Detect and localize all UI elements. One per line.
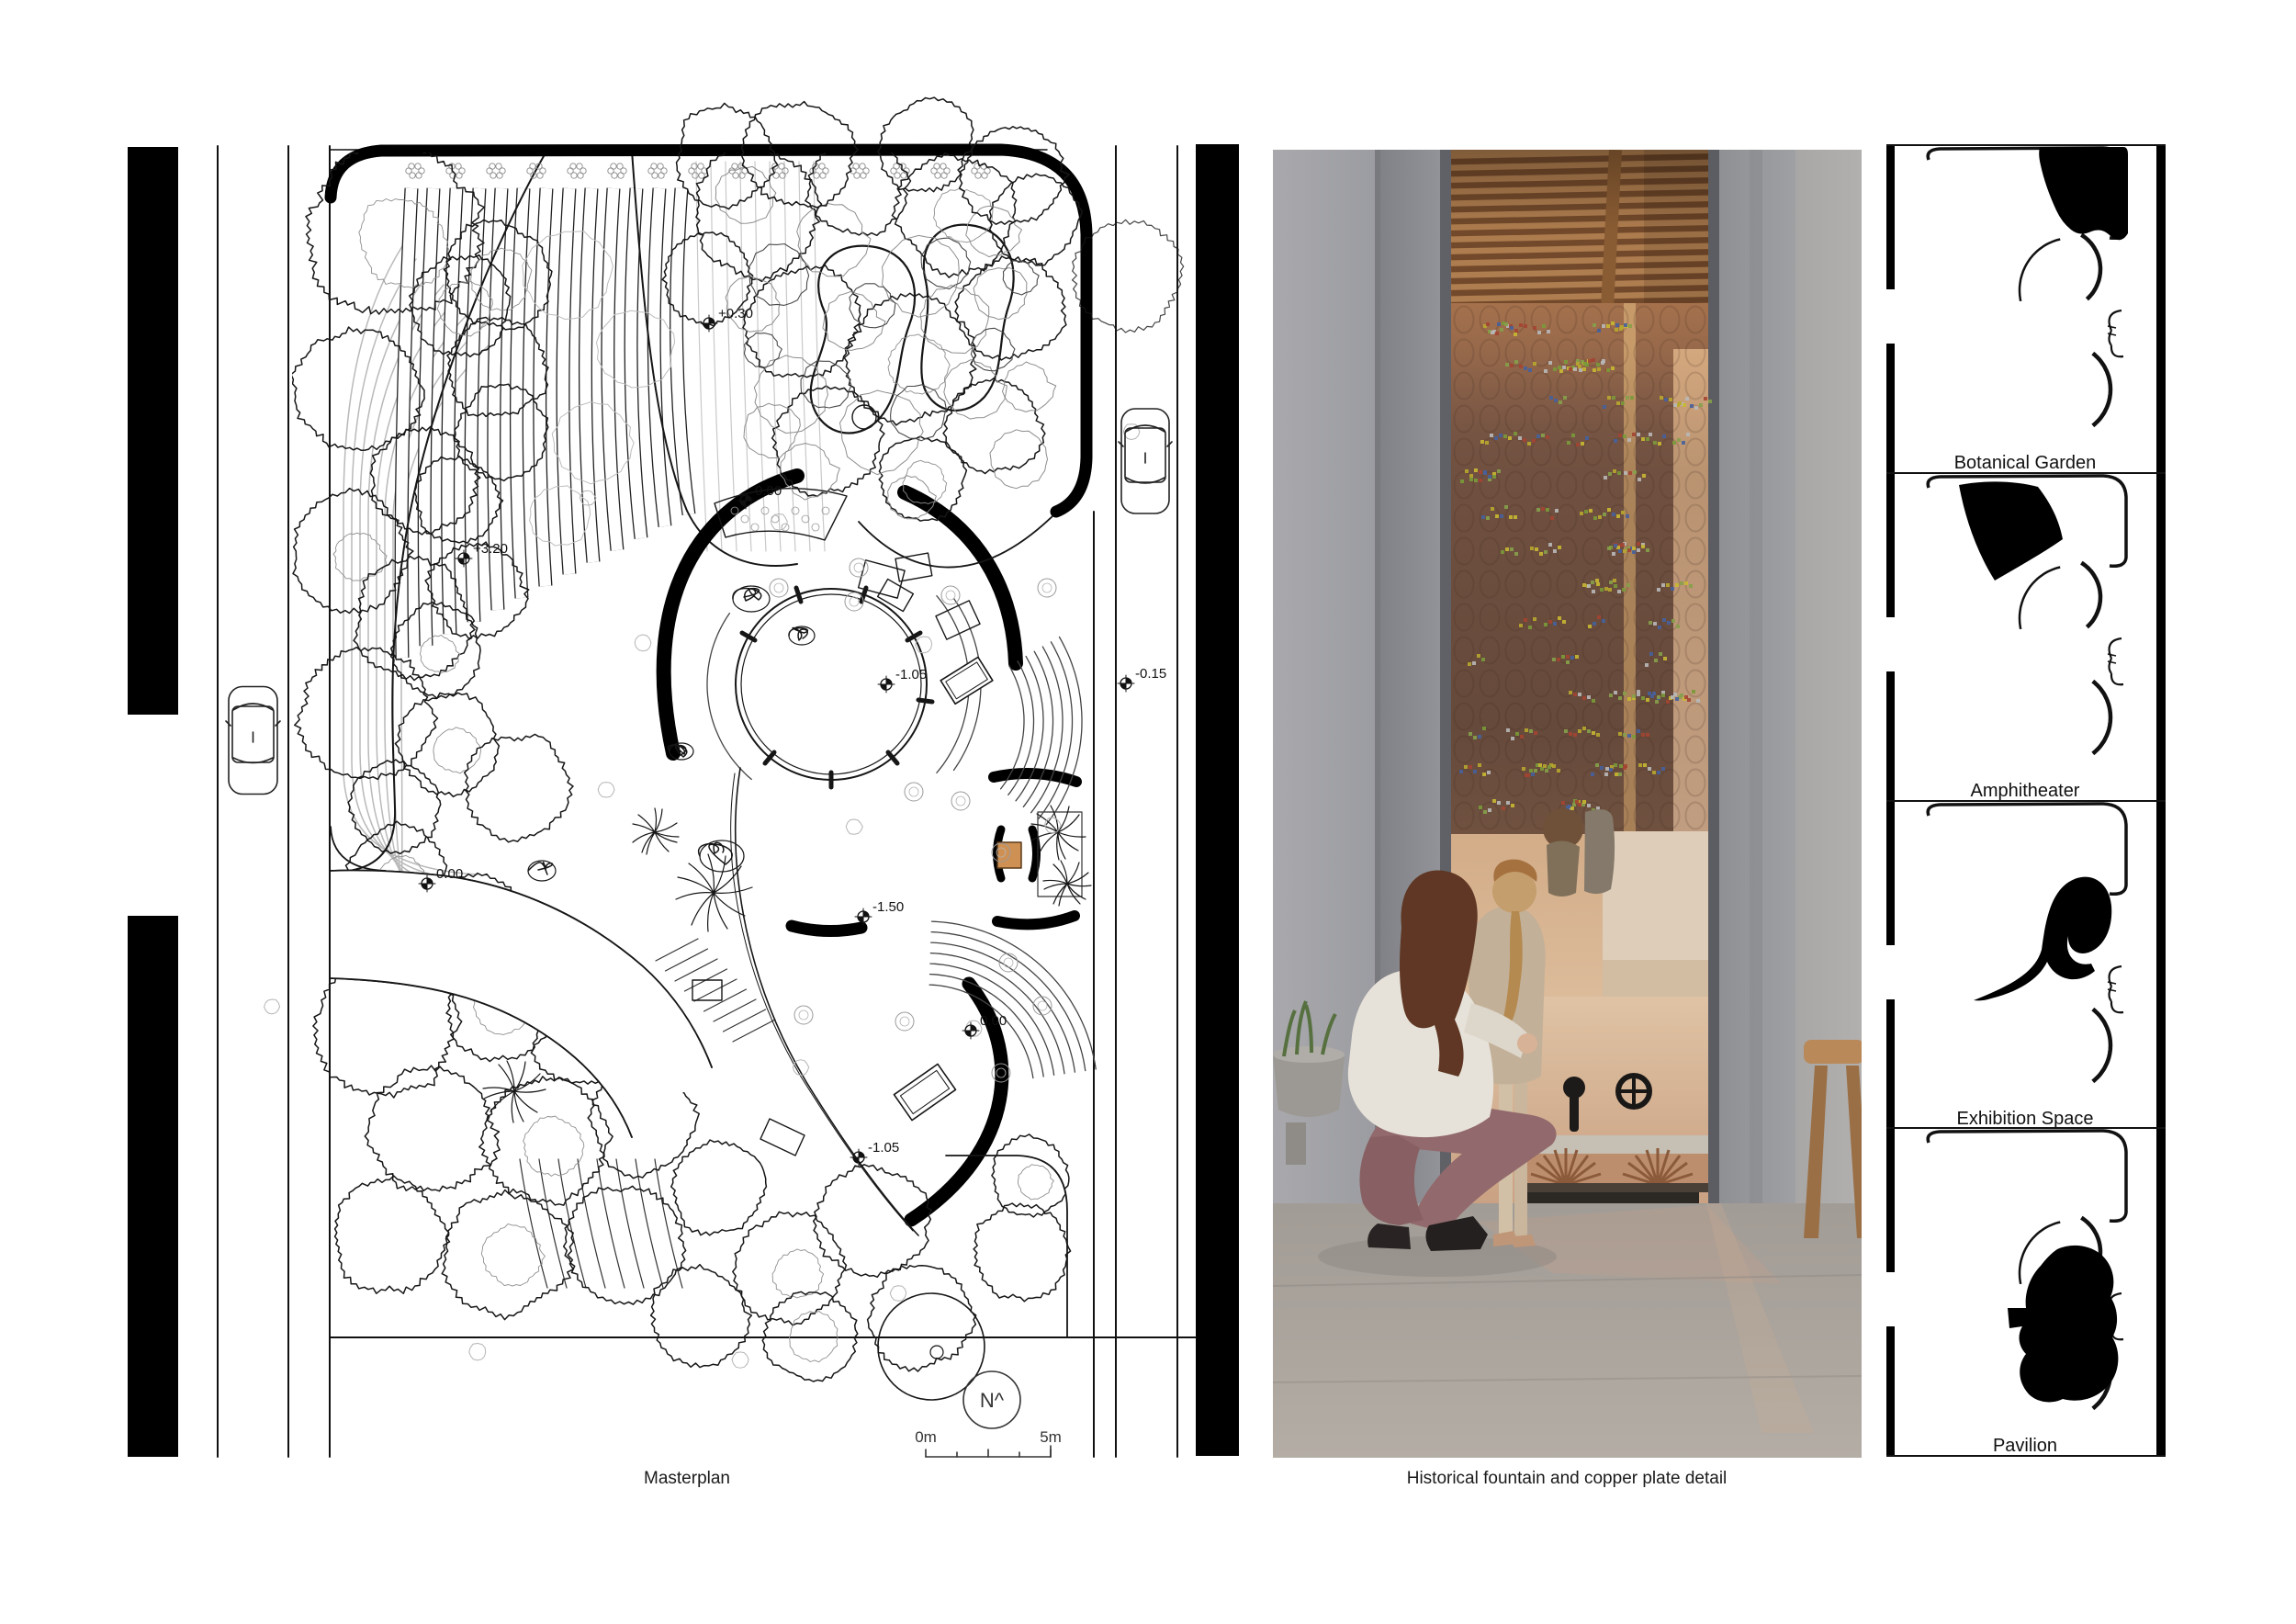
svg-text:Pavilion: Pavilion — [1993, 1436, 2057, 1456]
svg-text:N^: N^ — [980, 1389, 1005, 1412]
svg-text:5m: 5m — [1040, 1428, 1062, 1446]
svg-text:0.00: 0.00 — [755, 483, 782, 499]
svg-text:Exhibition Space: Exhibition Space — [1957, 1109, 2094, 1129]
svg-text:-1.05: -1.05 — [895, 667, 927, 682]
svg-text:+0.30: +0.30 — [718, 306, 753, 321]
svg-text:0m: 0m — [915, 1428, 937, 1446]
svg-text:Historical fountain and copper: Historical fountain and copper plate det… — [1407, 1469, 1728, 1488]
svg-text:-0.15: -0.15 — [1135, 666, 1166, 682]
svg-text:+3.20: +3.20 — [473, 541, 508, 557]
svg-text:-1.50: -1.50 — [872, 899, 904, 915]
svg-text:Botanical Garden: Botanical Garden — [1954, 453, 2097, 473]
svg-text:Amphitheater: Amphitheater — [1971, 781, 2080, 801]
svg-text:-1.05: -1.05 — [868, 1140, 899, 1156]
svg-text:Masterplan: Masterplan — [644, 1469, 730, 1488]
svg-text:0.00: 0.00 — [980, 1013, 1007, 1029]
svg-text:0.00: 0.00 — [436, 866, 463, 882]
